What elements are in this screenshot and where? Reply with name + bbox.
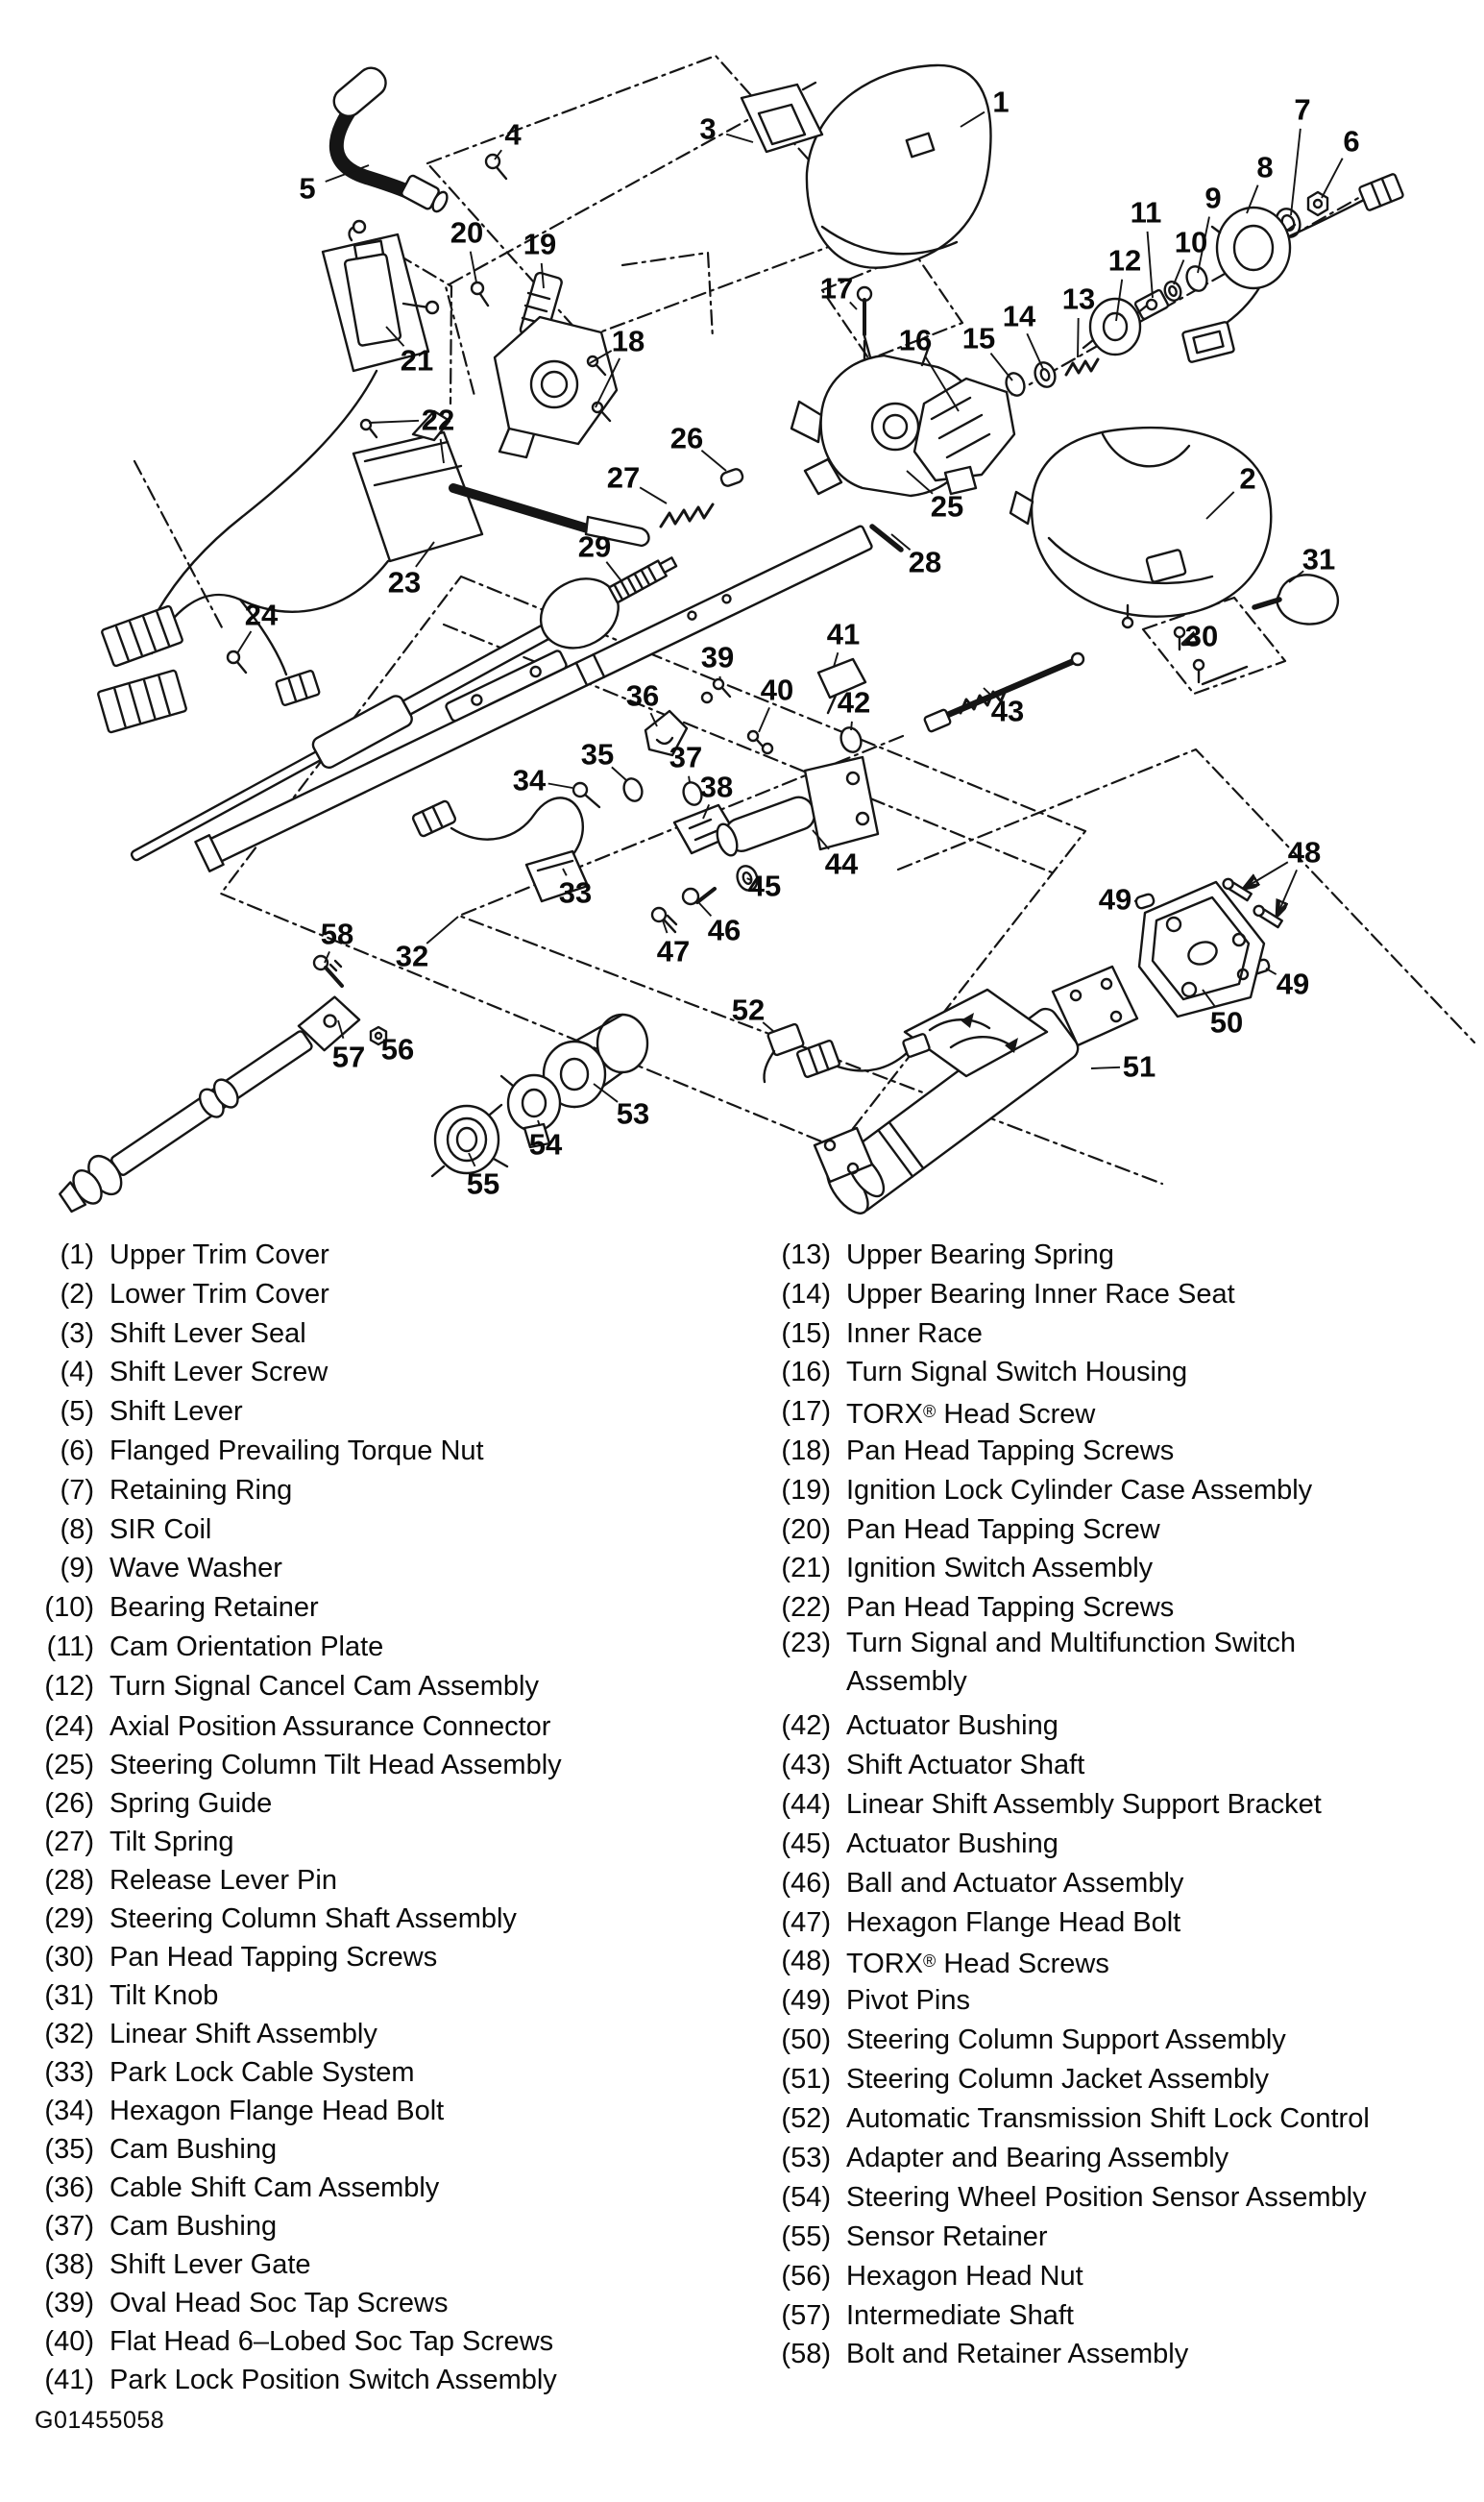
parts-list-item-49: (49)Pivot Pins bbox=[740, 1986, 970, 2016]
item-number: (53) bbox=[740, 2144, 831, 2173]
callout-39: 39 bbox=[701, 641, 734, 675]
item-label: Pan Head Tapping Screws bbox=[846, 1593, 1174, 1623]
parts-list-item-6: (6)Flanged Prevailing Torque Nut bbox=[19, 1436, 484, 1466]
callout-leader-26 bbox=[701, 451, 726, 471]
item-label: Hexagon Head Nut bbox=[846, 2262, 1083, 2292]
item-number: (15) bbox=[740, 1319, 831, 1349]
callout-leader-49 bbox=[1266, 969, 1277, 974]
item-number: (50) bbox=[740, 2025, 831, 2055]
item-label: Hexagon Flange Head Bolt bbox=[109, 2097, 444, 2126]
item-label: Park Lock Cable System bbox=[109, 2058, 415, 2088]
item-number: (1) bbox=[19, 1240, 94, 1270]
item-label: Tilt Knob bbox=[109, 1981, 218, 2011]
callout-leader-34 bbox=[548, 784, 572, 788]
parts-list-item-29: (29)Steering Column Shaft Assembly bbox=[19, 1904, 517, 1934]
callout-24: 24 bbox=[245, 599, 279, 632]
part-steering-column-support bbox=[1139, 882, 1264, 1017]
item-number: (27) bbox=[19, 1827, 94, 1857]
callout-48: 48 bbox=[1288, 836, 1321, 870]
callout-4: 4 bbox=[504, 118, 522, 152]
parts-list-item-11: (11)Cam Orientation Plate bbox=[19, 1632, 383, 1662]
callout-13: 13 bbox=[1062, 282, 1095, 316]
callout-leader-27 bbox=[640, 487, 667, 503]
item-number: (43) bbox=[740, 1751, 831, 1780]
callout-34: 34 bbox=[513, 764, 547, 797]
parts-list-item-44: (44)Linear Shift Assembly Support Bracke… bbox=[740, 1790, 1322, 1820]
callout-leader-20 bbox=[471, 252, 476, 282]
item-label: Tilt Spring bbox=[109, 1827, 233, 1857]
callout-50: 50 bbox=[1210, 1006, 1243, 1040]
parts-list-item-41: (41)Park Lock Position Switch Assembly bbox=[19, 2366, 557, 2395]
parts-list-item-24: (24)Axial Position Assurance Connector bbox=[19, 1712, 550, 1742]
registered-mark: ® bbox=[923, 1951, 936, 1971]
parts-list-item-15: (15)Inner Race bbox=[740, 1319, 983, 1349]
item-label: Upper Trim Cover bbox=[109, 1240, 329, 1270]
callout-leader-6 bbox=[1322, 159, 1343, 198]
item-number: (26) bbox=[19, 1789, 94, 1819]
item-number: (11) bbox=[19, 1632, 94, 1662]
item-number: (14) bbox=[740, 1280, 831, 1310]
callout-15: 15 bbox=[962, 322, 995, 356]
item-label: Wave Washer bbox=[109, 1554, 282, 1583]
item-label: Actuator Bushing bbox=[846, 1829, 1058, 1859]
item-number: (31) bbox=[19, 1981, 94, 2011]
parts-list-item-18: (18)Pan Head Tapping Screws bbox=[740, 1436, 1174, 1466]
item-label: Spring Guide bbox=[109, 1789, 272, 1819]
item-label: Inner Race bbox=[846, 1319, 983, 1349]
callout-55: 55 bbox=[467, 1167, 499, 1201]
callout-30: 30 bbox=[1185, 620, 1218, 653]
item-number: (55) bbox=[740, 2222, 831, 2252]
callout-58: 58 bbox=[321, 918, 353, 951]
callout-leader-42 bbox=[851, 722, 852, 730]
parts-list-item-50: (50)Steering Column Support Assembly bbox=[740, 2025, 1286, 2055]
item-number: (21) bbox=[740, 1554, 831, 1583]
parts-list-item-46: (46)Ball and Actuator Assembly bbox=[740, 1869, 1183, 1899]
callout-leader-48 bbox=[1277, 870, 1297, 915]
part-spring-guide bbox=[719, 468, 743, 488]
callout-31: 31 bbox=[1302, 543, 1335, 576]
callout-49: 49 bbox=[1099, 883, 1131, 917]
parts-list-item-22: (22)Pan Head Tapping Screws bbox=[740, 1593, 1174, 1623]
item-number: (45) bbox=[740, 1829, 831, 1859]
item-label: Steering Wheel Position Sensor Assembly bbox=[846, 2183, 1367, 2213]
parts-list-item-27: (27)Tilt Spring bbox=[19, 1827, 233, 1857]
callout-7: 7 bbox=[1294, 93, 1310, 127]
callout-36: 36 bbox=[626, 679, 659, 713]
callout-leader-15 bbox=[990, 354, 1012, 380]
callout-leader-22 bbox=[369, 421, 419, 423]
parts-list-item-34: (34)Hexagon Flange Head Bolt bbox=[19, 2097, 444, 2126]
part-sensor-retainer bbox=[432, 1105, 507, 1176]
callout-57: 57 bbox=[332, 1041, 365, 1074]
item-number: (57) bbox=[740, 2301, 831, 2331]
item-label: Steering Column Support Assembly bbox=[846, 2025, 1286, 2055]
callout-16: 16 bbox=[899, 324, 932, 357]
item-label: Steering Column Tilt Head Assembly bbox=[109, 1751, 562, 1780]
callout-leader-48 bbox=[1245, 862, 1288, 888]
parts-list-item-40: (40)Flat Head 6–Lobed Soc Tap Screws bbox=[19, 2327, 553, 2357]
item-number: (6) bbox=[19, 1436, 94, 1466]
exploded-view-diagram: 1234567891011121314151617181920212223242… bbox=[0, 0, 1484, 1230]
item-number: (58) bbox=[740, 2340, 831, 2369]
item-number: (20) bbox=[740, 1515, 831, 1545]
item-number: (52) bbox=[740, 2104, 831, 2134]
item-number: (9) bbox=[19, 1554, 94, 1583]
parts-list-item-23: (23)Turn Signal and Multifunction Switch bbox=[740, 1629, 1296, 1658]
part-axial-position-assurance-connector bbox=[228, 651, 246, 673]
item-label: Bearing Retainer bbox=[109, 1593, 319, 1623]
callout-leader-51 bbox=[1091, 1067, 1120, 1068]
callout-leader-13 bbox=[1078, 318, 1079, 357]
callout-43: 43 bbox=[991, 695, 1024, 728]
callout-11: 11 bbox=[1131, 196, 1162, 230]
item-number: (10) bbox=[19, 1593, 94, 1623]
callout-leader-40 bbox=[759, 707, 769, 732]
item-number: (23) bbox=[740, 1629, 831, 1658]
callout-38: 38 bbox=[700, 771, 733, 804]
callout-10: 10 bbox=[1175, 226, 1207, 259]
part-bolt-and-retainer bbox=[314, 956, 342, 986]
callout-52: 52 bbox=[732, 993, 765, 1027]
parts-list-item-9: (9)Wave Washer bbox=[19, 1554, 282, 1583]
item-label: Pivot Pins bbox=[846, 1986, 970, 2016]
parts-list-item-17: (17)TORX® Head Screw bbox=[740, 1397, 1095, 1430]
item-number: (7) bbox=[19, 1476, 94, 1506]
parts-list-item-55: (55)Sensor Retainer bbox=[740, 2222, 1048, 2252]
item-label: Shift Lever bbox=[109, 1397, 243, 1427]
callout-22: 22 bbox=[422, 404, 454, 437]
item-number: (13) bbox=[740, 1240, 831, 1270]
item-number: (28) bbox=[19, 1866, 94, 1896]
item-number: (51) bbox=[740, 2065, 831, 2095]
callout-56: 56 bbox=[381, 1033, 414, 1067]
parts-list-item-8: (8)SIR Coil bbox=[19, 1515, 211, 1545]
item-number: (30) bbox=[19, 1943, 94, 1973]
parts-list-item-16: (16)Turn Signal Switch Housing bbox=[740, 1358, 1187, 1387]
callout-51: 51 bbox=[1123, 1050, 1156, 1084]
item-number: (54) bbox=[740, 2183, 831, 2213]
item-number: (40) bbox=[19, 2327, 94, 2357]
callout-29: 29 bbox=[578, 530, 611, 564]
parts-list-item-19: (19)Ignition Lock Cylinder Case Assembly bbox=[740, 1476, 1312, 1506]
item-label: Linear Shift Assembly Support Bracket bbox=[846, 1790, 1322, 1820]
part-upper-trim-cover bbox=[807, 65, 991, 268]
part-wave-washer bbox=[1183, 263, 1210, 293]
callout-41: 41 bbox=[827, 618, 860, 651]
figure-code: G01455058 bbox=[35, 2407, 164, 2435]
callout-leader-39 bbox=[719, 676, 720, 680]
item-label: Flat Head 6–Lobed Soc Tap Screws bbox=[109, 2327, 553, 2357]
part-tilt-knob bbox=[1254, 575, 1338, 624]
callout-53: 53 bbox=[617, 1097, 649, 1131]
item-label: Steering Column Jacket Assembly bbox=[846, 2065, 1269, 2095]
item-number: (33) bbox=[19, 2058, 94, 2088]
parts-list-item-32: (32)Linear Shift Assembly bbox=[19, 2020, 377, 2049]
parts-list-item-7: (7)Retaining Ring bbox=[19, 1476, 292, 1506]
callout-6: 6 bbox=[1343, 125, 1359, 159]
part-flat-head-soc-tap-screws bbox=[748, 731, 772, 753]
part-flanged-nut bbox=[1308, 192, 1327, 215]
item-label: Ignition Switch Assembly bbox=[846, 1554, 1153, 1583]
item-label: Ball and Actuator Assembly bbox=[846, 1869, 1183, 1899]
callout-12: 12 bbox=[1108, 244, 1141, 278]
parts-list-item-21: (21)Ignition Switch Assembly bbox=[740, 1554, 1153, 1583]
item-number: (5) bbox=[19, 1397, 94, 1427]
item-number: (42) bbox=[740, 1711, 831, 1741]
parts-list-item-38: (38)Shift Lever Gate bbox=[19, 2250, 311, 2280]
part-intermediate-shaft bbox=[54, 991, 364, 1219]
callout-leader-24 bbox=[237, 631, 251, 653]
callout-47: 47 bbox=[657, 935, 690, 969]
part-hexagon-flange-head-bolt-34 bbox=[573, 783, 599, 807]
parts-list-item-54: (54)Steering Wheel Position Sensor Assem… bbox=[740, 2183, 1367, 2213]
item-number: (39) bbox=[19, 2289, 94, 2318]
item-number: (29) bbox=[19, 1904, 94, 1934]
callout-54: 54 bbox=[529, 1128, 563, 1162]
item-label: Shift Lever Seal bbox=[109, 1319, 306, 1349]
item-label: Sensor Retainer bbox=[846, 2222, 1048, 2252]
item-number: (46) bbox=[740, 1869, 831, 1899]
parts-list-item-33: (33)Park Lock Cable System bbox=[19, 2058, 415, 2088]
item-label: Pan Head Tapping Screws bbox=[109, 1943, 437, 1973]
item-label: Oval Head Soc Tap Screws bbox=[109, 2289, 448, 2318]
callout-3: 3 bbox=[699, 112, 716, 146]
item-label: Turn Signal Cancel Cam Assembly bbox=[109, 1672, 539, 1702]
callout-46: 46 bbox=[708, 914, 741, 947]
parts-list-item-5: (5)Shift Lever bbox=[19, 1397, 243, 1427]
callout-2: 2 bbox=[1239, 462, 1255, 496]
parts-list-item-3: (3)Shift Lever Seal bbox=[19, 1319, 306, 1349]
item-label: Automatic Transmission Shift Lock Contro… bbox=[846, 2104, 1370, 2134]
callout-leader-37 bbox=[689, 776, 690, 782]
callout-leader-14 bbox=[1027, 333, 1043, 369]
item-number: (34) bbox=[19, 2097, 94, 2126]
item-number: (37) bbox=[19, 2212, 94, 2242]
item-label: Turn Signal Switch Housing bbox=[846, 1358, 1187, 1387]
callout-26: 26 bbox=[670, 422, 703, 455]
item-number: (22) bbox=[740, 1593, 831, 1623]
item-label: Cam Orientation Plate bbox=[109, 1632, 383, 1662]
callout-1: 1 bbox=[992, 86, 1009, 119]
parts-list-item-14: (14)Upper Bearing Inner Race Seat bbox=[740, 1280, 1235, 1310]
parts-list-item-23-line2: Assembly bbox=[740, 1667, 967, 1697]
parts-list-item-10: (10)Bearing Retainer bbox=[19, 1593, 319, 1623]
item-number: (16) bbox=[740, 1358, 831, 1387]
callout-leader-32 bbox=[426, 917, 458, 944]
callout-49: 49 bbox=[1277, 968, 1309, 1001]
parts-list-item-51: (51)Steering Column Jacket Assembly bbox=[740, 2065, 1269, 2095]
callout-9: 9 bbox=[1204, 182, 1221, 215]
parts-list-item-42: (42)Actuator Bushing bbox=[740, 1711, 1058, 1741]
part-ignition-lock-cylinder-case bbox=[495, 272, 617, 457]
item-number: (48) bbox=[740, 1947, 831, 1979]
callout-19: 19 bbox=[523, 228, 556, 261]
item-number: (12) bbox=[19, 1672, 94, 1702]
parts-list-item-28: (28)Release Lever Pin bbox=[19, 1866, 337, 1896]
item-label: Upper Bearing Spring bbox=[846, 1240, 1114, 1270]
item-label: Actuator Bushing bbox=[846, 1711, 1058, 1741]
item-number: (2) bbox=[19, 1280, 94, 1310]
parts-list-item-2: (2)Lower Trim Cover bbox=[19, 1280, 329, 1310]
parts-list-item-31: (31)Tilt Knob bbox=[19, 1981, 218, 2011]
parts-list-item-47: (47)Hexagon Flange Head Bolt bbox=[740, 1908, 1180, 1938]
item-label: Ignition Lock Cylinder Case Assembly bbox=[846, 1476, 1312, 1506]
item-label: TORX® Head Screw bbox=[846, 1397, 1095, 1430]
parts-list-item-25: (25)Steering Column Tilt Head Assembly bbox=[19, 1751, 562, 1780]
item-label: Cable Shift Cam Assembly bbox=[109, 2173, 439, 2203]
item-label: Adapter and Bearing Assembly bbox=[846, 2144, 1229, 2173]
item-number: (18) bbox=[740, 1436, 831, 1466]
item-number: (47) bbox=[740, 1908, 831, 1938]
parts-list-item-26: (26)Spring Guide bbox=[19, 1789, 272, 1819]
callout-leader-3 bbox=[726, 135, 753, 142]
item-label: Turn Signal and Multifunction Switch bbox=[846, 1629, 1296, 1658]
item-number: (41) bbox=[19, 2366, 94, 2395]
part-linear-shift-support-bracket bbox=[714, 757, 878, 858]
part-oval-head-soc-tap-screws bbox=[702, 679, 730, 702]
parts-list-item-52: (52)Automatic Transmission Shift Lock Co… bbox=[740, 2104, 1370, 2134]
part-tilt-spring bbox=[661, 504, 713, 527]
parts-list-item-37: (37)Cam Bushing bbox=[19, 2212, 277, 2242]
callout-27: 27 bbox=[607, 461, 640, 495]
item-label: Shift Lever Screw bbox=[109, 1358, 328, 1387]
part-ball-and-actuator bbox=[683, 889, 715, 904]
callout-28: 28 bbox=[909, 546, 941, 579]
item-number: (32) bbox=[19, 2020, 94, 2049]
callout-14: 14 bbox=[1003, 300, 1036, 333]
item-label: Pan Head Tapping Screw bbox=[846, 1515, 1160, 1545]
part-cam-bushing-35 bbox=[620, 776, 645, 804]
item-label: Cam Bushing bbox=[109, 2212, 277, 2242]
item-number: (49) bbox=[740, 1986, 831, 2016]
item-number: (17) bbox=[740, 1397, 831, 1430]
parts-list-item-43: (43)Shift Actuator Shaft bbox=[740, 1751, 1084, 1780]
part-steering-column-jacket bbox=[815, 967, 1137, 1220]
part-upper-bearing-inner-race-seat bbox=[1032, 359, 1058, 389]
callout-42: 42 bbox=[838, 686, 870, 720]
item-label: Bolt and Retainer Assembly bbox=[846, 2340, 1188, 2369]
item-label: Upper Bearing Inner Race Seat bbox=[846, 1280, 1235, 1310]
parts-list-item-48: (48)TORX® Head Screws bbox=[740, 1947, 1109, 1979]
parts-list-item-56: (56)Hexagon Head Nut bbox=[740, 2262, 1083, 2292]
item-number: (56) bbox=[740, 2262, 831, 2292]
parts-list-item-4: (4)Shift Lever Screw bbox=[19, 1358, 328, 1387]
callout-5: 5 bbox=[299, 172, 315, 206]
callout-17: 17 bbox=[820, 272, 853, 306]
item-number: (4) bbox=[19, 1358, 94, 1387]
parts-list-item-58: (58)Bolt and Retainer Assembly bbox=[740, 2340, 1188, 2369]
parts-list-item-12: (12)Turn Signal Cancel Cam Assembly bbox=[19, 1672, 539, 1702]
callout-21: 21 bbox=[401, 344, 433, 378]
item-label: Release Lever Pin bbox=[109, 1866, 337, 1896]
callout-32: 32 bbox=[396, 940, 428, 973]
callout-leader-10 bbox=[1174, 260, 1183, 284]
item-label: Lower Trim Cover bbox=[109, 1280, 329, 1310]
item-label: Linear Shift Assembly bbox=[109, 2020, 377, 2049]
item-label: Shift Lever Gate bbox=[109, 2250, 311, 2280]
part-hexagon-flange-head-bolt-47 bbox=[652, 908, 676, 932]
item-number: (25) bbox=[19, 1751, 94, 1780]
item-number: (24) bbox=[19, 1712, 94, 1742]
parts-list-item-57: (57)Intermediate Shaft bbox=[740, 2301, 1074, 2331]
item-label: Hexagon Flange Head Bolt bbox=[846, 1908, 1180, 1938]
callout-33: 33 bbox=[559, 876, 592, 910]
callout-25: 25 bbox=[931, 490, 963, 524]
item-number: (44) bbox=[740, 1790, 831, 1820]
callout-44: 44 bbox=[825, 847, 859, 881]
callout-leader-7 bbox=[1291, 129, 1301, 215]
parts-list-item-36: (36)Cable Shift Cam Assembly bbox=[19, 2173, 439, 2203]
parts-list-item-13: (13)Upper Bearing Spring bbox=[740, 1240, 1114, 1270]
callout-20: 20 bbox=[450, 216, 483, 250]
callout-18: 18 bbox=[612, 325, 645, 358]
callout-35: 35 bbox=[581, 738, 614, 772]
callout-37: 37 bbox=[669, 741, 702, 774]
part-shift-lever-seal bbox=[742, 85, 822, 152]
item-label: Intermediate Shaft bbox=[846, 2301, 1074, 2331]
item-label: Park Lock Position Switch Assembly bbox=[109, 2366, 557, 2395]
item-number: (35) bbox=[19, 2135, 94, 2165]
callout-45: 45 bbox=[748, 870, 781, 903]
parts-list-item-30: (30)Pan Head Tapping Screws bbox=[19, 1943, 437, 1973]
item-number: (38) bbox=[19, 2250, 94, 2280]
item-number: (8) bbox=[19, 1515, 94, 1545]
item-label: Pan Head Tapping Screws bbox=[846, 1436, 1174, 1466]
item-label: Shift Actuator Shaft bbox=[846, 1751, 1084, 1780]
callout-40: 40 bbox=[761, 674, 793, 707]
item-label: Axial Position Assurance Connector bbox=[109, 1712, 550, 1742]
item-label: TORX® Head Screws bbox=[846, 1947, 1109, 1979]
item-label: Flanged Prevailing Torque Nut bbox=[109, 1436, 484, 1466]
item-label: SIR Coil bbox=[109, 1515, 211, 1545]
part-pan-head-tapping-screw-20 bbox=[472, 282, 488, 306]
callout-leader-29 bbox=[606, 562, 622, 582]
parts-list-item-1: (1)Upper Trim Cover bbox=[19, 1240, 329, 1270]
item-number-spacer bbox=[740, 1667, 831, 1697]
exploded-parts-figure-page: 1234567891011121314151617181920212223242… bbox=[0, 0, 1484, 2502]
parts-list-item-45: (45)Actuator Bushing bbox=[740, 1829, 1058, 1859]
callout-8: 8 bbox=[1256, 151, 1273, 184]
item-label: Retaining Ring bbox=[109, 1476, 292, 1506]
parts-list-item-35: (35)Cam Bushing bbox=[19, 2135, 277, 2165]
callout-23: 23 bbox=[388, 566, 421, 600]
registered-mark: ® bbox=[923, 1402, 936, 1421]
parts-list-item-39: (39)Oval Head Soc Tap Screws bbox=[19, 2289, 448, 2318]
item-label: Cam Bushing bbox=[109, 2135, 277, 2165]
part-shift-lever bbox=[328, 62, 450, 214]
item-label: Steering Column Shaft Assembly bbox=[109, 1904, 517, 1934]
item-number: (3) bbox=[19, 1319, 94, 1349]
parts-list-item-20: (20)Pan Head Tapping Screw bbox=[740, 1515, 1160, 1545]
callout-leader-11 bbox=[1148, 232, 1153, 298]
item-number: (19) bbox=[740, 1476, 831, 1506]
parts-list-item-53: (53)Adapter and Bearing Assembly bbox=[740, 2144, 1229, 2173]
item-number: (36) bbox=[19, 2173, 94, 2203]
item-label: Assembly bbox=[846, 1667, 967, 1697]
